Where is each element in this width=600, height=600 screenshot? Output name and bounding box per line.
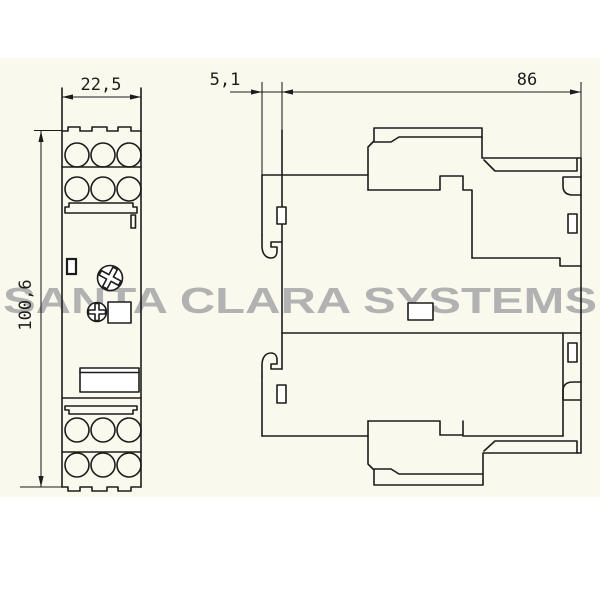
dimension-front-width: 22,5 xyxy=(62,75,141,100)
back-slot-upper xyxy=(277,207,286,224)
back-slot-lower xyxy=(277,385,286,403)
lower-terminal-block-profile xyxy=(368,333,581,485)
side-rail-offset-label: 5,1 xyxy=(210,70,241,90)
front-top-stepped-edge xyxy=(62,127,141,131)
lower-cover-strip xyxy=(65,406,137,414)
potentiometer-screw xyxy=(88,303,107,322)
front-slot-lower xyxy=(568,343,577,362)
drawing-page: SANTA CLARA SYSTEMS xyxy=(0,0,600,600)
led-window xyxy=(67,259,76,274)
front-view xyxy=(62,88,141,491)
dimension-front-height: 100,6 xyxy=(16,131,62,488)
front-height-label: 100,6 xyxy=(16,279,36,330)
front-bottom-stepped-edge xyxy=(62,487,141,491)
side-depth-label: 86 xyxy=(517,70,537,90)
label-holder xyxy=(80,368,139,392)
side-view xyxy=(262,128,581,485)
upper-terminal-block-profile xyxy=(368,128,581,266)
setting-window xyxy=(108,302,131,323)
lower-terminal-screws xyxy=(62,418,141,477)
technical-drawing: 22,5 100,6 5,1 86 xyxy=(0,0,600,600)
din-clip-lower xyxy=(262,353,282,376)
din-clip-upper xyxy=(262,235,282,258)
front-slot-upper xyxy=(568,214,577,233)
upper-cover-strip xyxy=(65,203,137,213)
rotary-selector-knob xyxy=(95,263,125,293)
upper-terminal-screws xyxy=(62,143,141,201)
dimension-side-depth: 5,1 86 xyxy=(210,70,581,175)
front-width-label: 22,5 xyxy=(81,75,122,95)
marking-window xyxy=(408,303,433,320)
release-notch xyxy=(131,215,136,228)
